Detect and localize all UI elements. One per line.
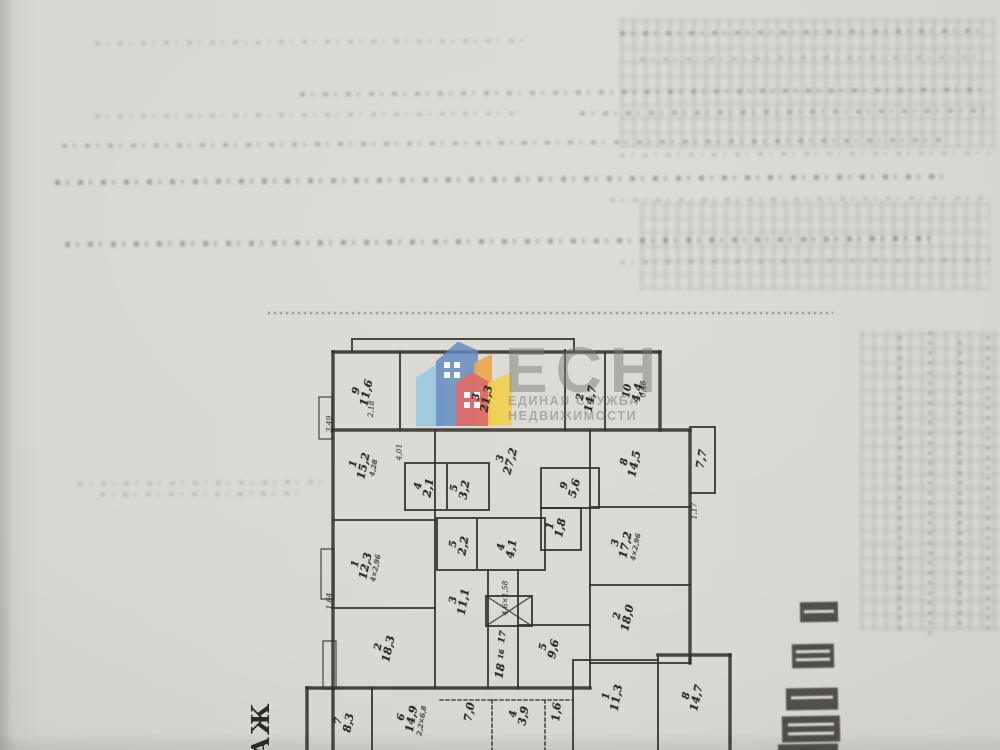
- scanned-floor-plan-page: ЕСН ЕДИНАЯ СЛУЖБА НЕДВИЖИМОСТИ 911,6321,…: [0, 0, 1000, 750]
- brand-houses-icon: [412, 336, 512, 426]
- dimension-label: 2,18: [366, 400, 376, 417]
- room-label: 218,3: [371, 633, 396, 663]
- room-label: 44,1: [495, 537, 518, 559]
- dimension-label: 1,64: [325, 593, 334, 610]
- stair-number: 18: [492, 662, 507, 679]
- dimension-label: 3,49: [325, 416, 334, 433]
- dimension-label: 4,6×1,58: [501, 581, 510, 616]
- room-label: 112,34×2,96: [348, 549, 383, 582]
- room-label: 218,0: [610, 602, 635, 632]
- room-label: 317,24×2,96: [608, 528, 643, 561]
- room-label: 42,1: [412, 476, 435, 498]
- room-label: 311,1: [447, 586, 471, 616]
- room-label: 43,9: [507, 704, 530, 726]
- room-label: 59,6: [537, 637, 561, 660]
- room-label: 214,7: [574, 383, 598, 413]
- room-label: 11,8: [544, 516, 568, 539]
- watermark: ЕСН ЕДИНАЯ СЛУЖБА НЕДВИЖИМОСТИ: [412, 332, 672, 428]
- room-label: 814,7: [679, 682, 704, 712]
- room-label: 1,6: [551, 702, 563, 722]
- room-label: 7,7: [695, 449, 708, 470]
- dimension-label: 0,48: [639, 381, 648, 398]
- room-label: 7,0: [463, 702, 476, 723]
- room-label: 78,3: [332, 711, 355, 733]
- dimension-label: 4,01: [395, 444, 404, 461]
- room-label: 52,2: [447, 534, 470, 556]
- room-label: 111,3: [600, 682, 624, 712]
- stair-number: 17: [497, 630, 509, 644]
- stair-number: 16: [496, 648, 507, 659]
- room-label: 321,3: [470, 383, 494, 413]
- floor-caption-fragment: АЖ: [225, 709, 295, 749]
- room-label: 53,2: [448, 478, 471, 500]
- room-label: 814,5: [617, 448, 642, 478]
- room-label: 614,92,2×6,8: [395, 702, 430, 737]
- dimension-label: 1,17: [690, 503, 699, 520]
